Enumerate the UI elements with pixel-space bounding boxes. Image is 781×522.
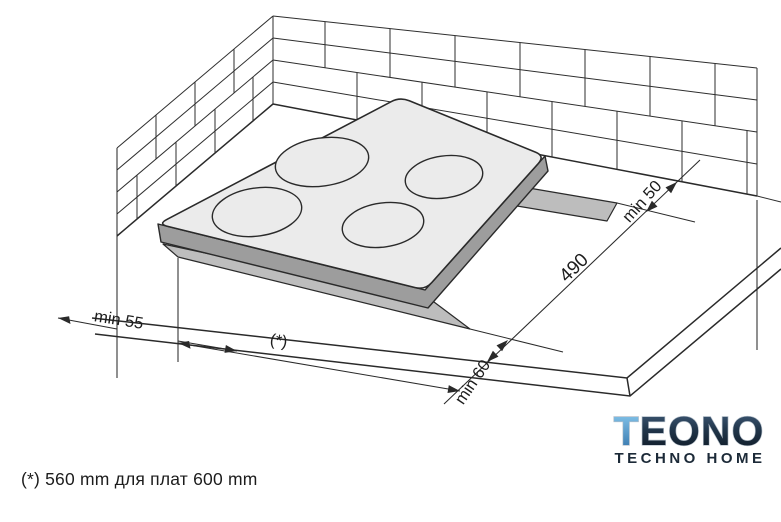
arrow-left-icon [178,341,191,349]
arrow-down-left-icon [487,351,499,362]
footnote-caption: (*) 560 mm для плат 600 mm [21,469,258,490]
dim-width-ref-label: (*) [269,331,289,351]
dim-side-clearance: min 55 [58,307,237,353]
dim-min50-label: min 50 [619,177,666,226]
cooktop-installation-drawing: min 55 (*) min 60 490 min 50 [0,0,781,522]
brand-logo: TEONO TECHNO HOME [614,408,766,467]
brand-tagline: TECHNO HOME [615,450,766,467]
dim-min55-label: min 55 [93,307,145,333]
dim-min60-label: min 60 [452,357,495,408]
dim-490-label: 490 [555,249,592,286]
arrow-left-icon [58,316,71,324]
brand-name: TEONO [614,408,765,454]
arrow-up-right-icon [497,340,509,351]
installation-diagram-page: min 55 (*) min 60 490 min 50 [0,0,781,522]
dim-cutout-width: (*) [178,331,460,393]
brand-letter-t: T [614,408,640,454]
